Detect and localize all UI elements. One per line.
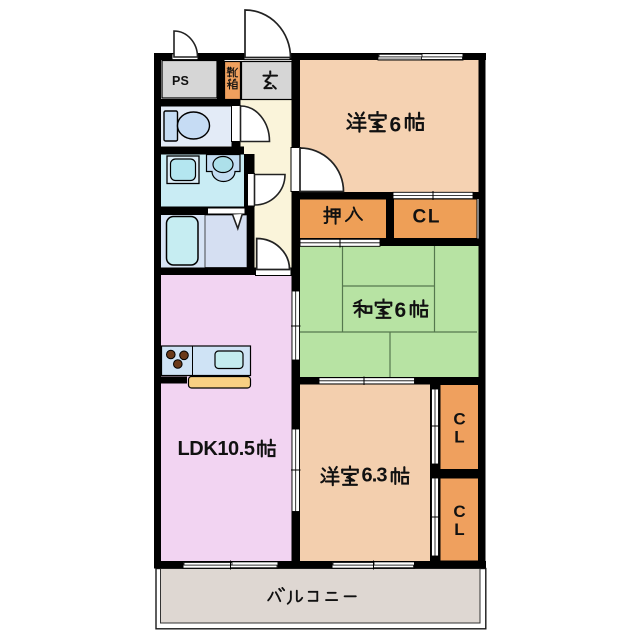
svg-text:L: L [454, 520, 464, 539]
svg-text:L: L [454, 428, 464, 447]
svg-text:CL: CL [413, 207, 440, 228]
svg-text:6: 6 [390, 114, 402, 137]
svg-text:PS: PS [172, 74, 189, 88]
svg-text:6: 6 [395, 299, 407, 322]
svg-text:LDK10.5: LDK10.5 [178, 438, 256, 460]
svg-text:C: C [453, 410, 465, 429]
svg-text:6.3: 6.3 [362, 465, 388, 487]
svg-text:C: C [453, 502, 465, 521]
